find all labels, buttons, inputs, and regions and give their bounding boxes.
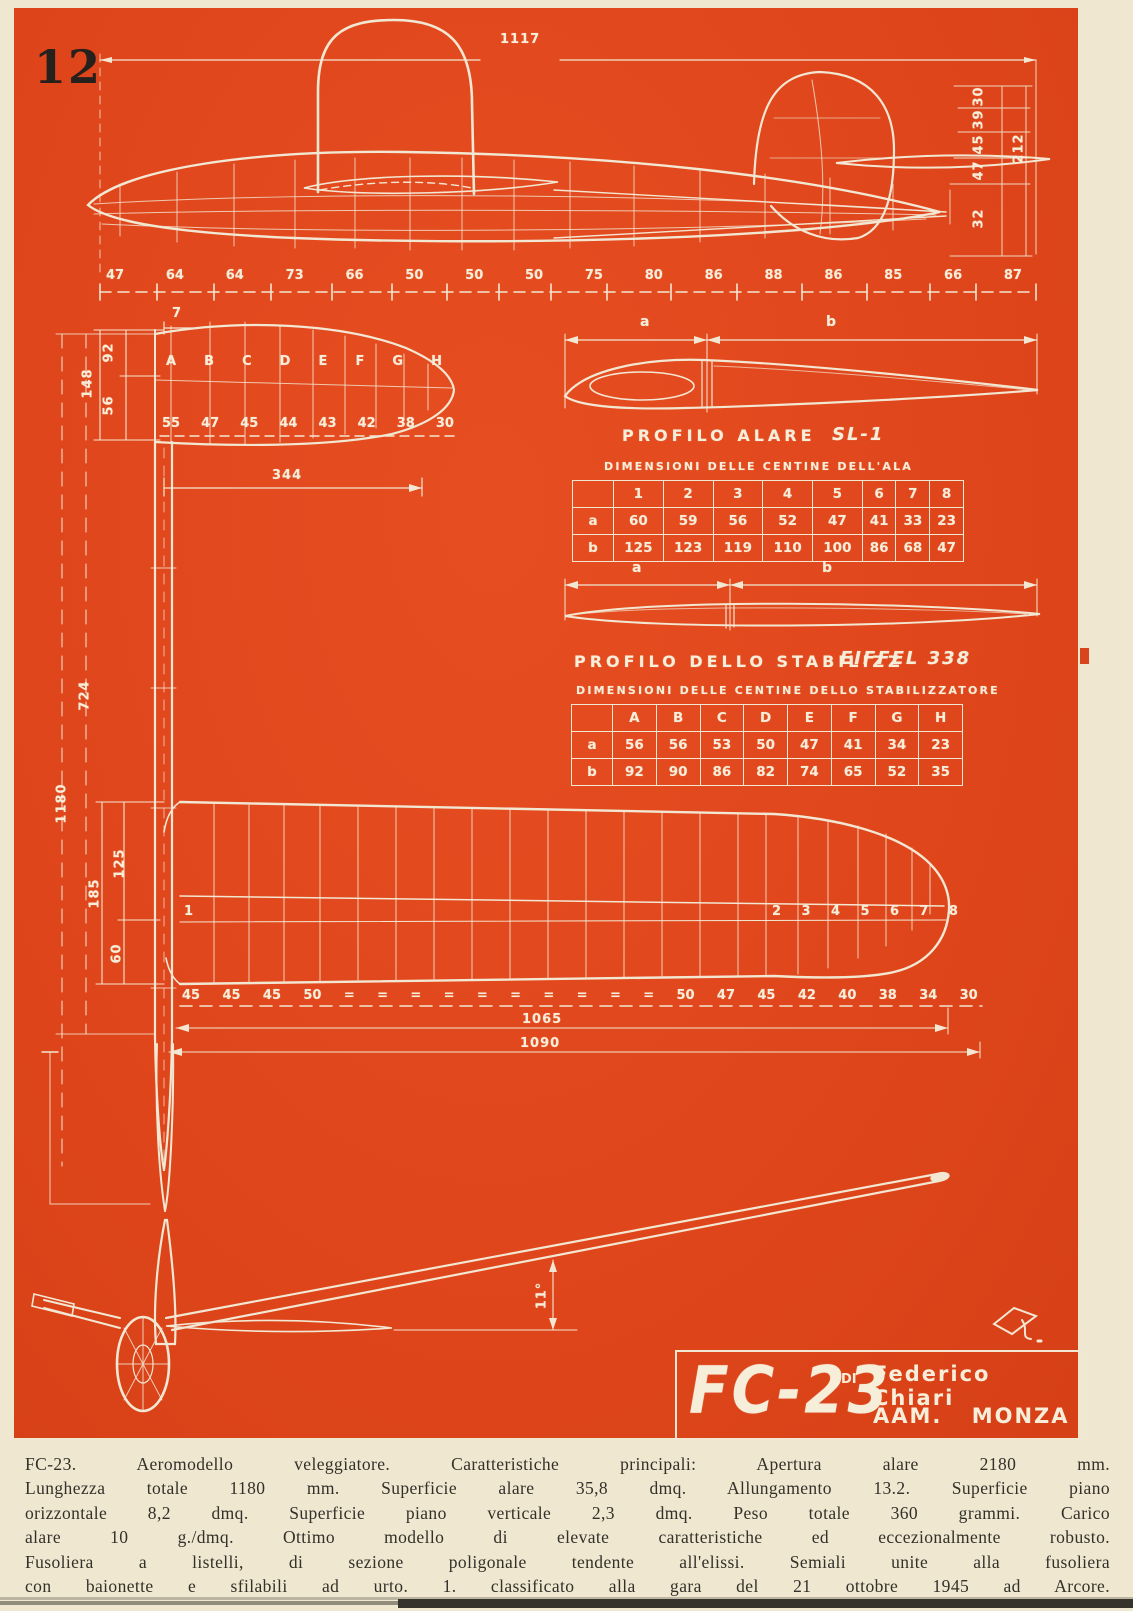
value-cell: 74 xyxy=(788,759,832,786)
value-cell: 119 xyxy=(713,535,763,562)
wing-dim-125: 125 xyxy=(113,848,128,878)
value-cell: 82 xyxy=(744,759,788,786)
fuselage-total-dim: 1180 xyxy=(55,783,70,823)
value-cell: F xyxy=(831,705,875,732)
value-cell: 53 xyxy=(700,732,744,759)
dim-value: 3 xyxy=(801,904,810,919)
page-number: 12 xyxy=(34,40,102,94)
dim-value: 80 xyxy=(645,268,663,283)
stab-span-dim: 344 xyxy=(272,468,302,483)
caption-block: FC-23. Aeromodello veleggiatore. Caratte… xyxy=(25,1452,1110,1598)
value-cell: G xyxy=(875,705,919,732)
wing-profile-title: PROFILO ALARE xyxy=(622,426,816,445)
dim-value: F xyxy=(355,354,364,369)
dihedral-angle-label: 11° xyxy=(534,1282,549,1310)
magazine-page: { "page": { "number": "12", "plate_color… xyxy=(0,0,1133,1611)
dim-value: = xyxy=(643,988,654,1003)
caption-line: orizzontale 8,2 dmq. Superficie piano ve… xyxy=(25,1501,1110,1525)
dim-value: = xyxy=(377,988,388,1003)
value-cell: 52 xyxy=(875,759,919,786)
wing-rib-number-root: 1 xyxy=(184,904,194,919)
dim-value: = xyxy=(510,988,521,1003)
table-row: ABCDEFGH xyxy=(572,705,963,732)
value-cell: 125 xyxy=(614,535,664,562)
wing-dim-185: 185 xyxy=(88,878,103,908)
dim-value: 40 xyxy=(838,988,856,1003)
value-cell: 41 xyxy=(862,508,896,535)
dim-value: = xyxy=(410,988,421,1003)
table-row: 12345678 xyxy=(573,481,964,508)
row-label-cell: a xyxy=(573,508,614,535)
stab-dim-56: 56 xyxy=(102,395,117,415)
caption-line: Lunghezza totale 1180 mm. Superficie ala… xyxy=(25,1476,1110,1500)
value-cell: 47 xyxy=(813,508,863,535)
dim-value: 47 xyxy=(106,268,124,283)
dim-value: 38 xyxy=(397,416,415,431)
dim-value: 75 xyxy=(585,268,603,283)
dim-value: 30 xyxy=(436,416,454,431)
row-label-cell: b xyxy=(572,759,613,786)
designer-signature-icon xyxy=(994,1308,1041,1341)
dim-value: 66 xyxy=(345,268,363,283)
blueprint-plate: 12 1117 47646473665050507580868886856687… xyxy=(14,8,1078,1438)
wing-profile-b-label: b xyxy=(826,314,837,330)
value-cell: 110 xyxy=(763,535,813,562)
dim-value: 2 xyxy=(772,904,781,919)
value-cell: 8 xyxy=(930,481,964,508)
value-cell: 41 xyxy=(831,732,875,759)
tail-dim-2: 39 xyxy=(972,109,987,129)
value-cell: 47 xyxy=(930,535,964,562)
value-cell: D xyxy=(744,705,788,732)
fuselage-plan-linework xyxy=(56,334,176,1170)
dim-value: = xyxy=(577,988,588,1003)
dim-value: 64 xyxy=(166,268,184,283)
dim-value: 50 xyxy=(676,988,694,1003)
dim-value: 50 xyxy=(303,988,321,1003)
dim-value: B xyxy=(204,354,214,369)
caption-line: con baionette e sfilabili ad urto. 1. cl… xyxy=(25,1574,1110,1598)
value-cell: 47 xyxy=(788,732,832,759)
dim-value: 42 xyxy=(358,416,376,431)
wing-rib-numbers: 2345678 xyxy=(772,904,958,919)
value-cell: 23 xyxy=(930,508,964,535)
value-cell: 65 xyxy=(831,759,875,786)
dim-value: D xyxy=(280,354,291,369)
value-cell: 35 xyxy=(919,759,963,786)
tail-dim-3: 45 xyxy=(972,134,987,154)
value-cell: 34 xyxy=(875,732,919,759)
value-cell: A xyxy=(613,705,657,732)
value-cell: 50 xyxy=(744,732,788,759)
wing-span-dim-1: 1065 xyxy=(522,1012,562,1027)
value-cell: 100 xyxy=(813,535,863,562)
value-cell: 56 xyxy=(656,732,700,759)
value-cell: 123 xyxy=(663,535,713,562)
sideview-station-dims: 47646473665050507580868886856687 xyxy=(106,268,1022,283)
value-cell: 33 xyxy=(896,508,930,535)
dim-value: = xyxy=(344,988,355,1003)
dim-value: 45 xyxy=(263,988,281,1003)
dim-value: 86 xyxy=(705,268,723,283)
dim-value: = xyxy=(477,988,488,1003)
dim-value: 43 xyxy=(319,416,337,431)
dim-value: 44 xyxy=(279,416,297,431)
value-cell: 59 xyxy=(663,508,713,535)
value-cell: 5 xyxy=(813,481,863,508)
stab-spacing-dims: 5547454443423830 xyxy=(162,416,454,431)
caption-line: Fusoliera a listelli, di sezione poligon… xyxy=(25,1550,1110,1574)
dim-value: = xyxy=(543,988,554,1003)
dim-value: 42 xyxy=(798,988,816,1003)
stab-dim-92: 92 xyxy=(102,342,117,362)
dim-value: H xyxy=(431,354,442,369)
dim-value: 45 xyxy=(222,988,240,1003)
stab-profile-a-label: a xyxy=(632,560,642,576)
side-view-linework xyxy=(88,20,1050,300)
wing-table-caption: DIMENSIONI DELLE CENTINE DELL'ALA xyxy=(604,460,913,473)
value-cell: 60 xyxy=(614,508,664,535)
designer-name: Federico Chiari xyxy=(873,1362,1079,1410)
dim-value: 87 xyxy=(1004,268,1022,283)
stab-profile-b-label: b xyxy=(822,560,833,576)
dim-value: C xyxy=(242,354,252,369)
rib-dimension-table: 12345678a6059565247413323b12512311911010… xyxy=(572,480,964,562)
page-edge-mid xyxy=(0,1601,400,1605)
stab-dim-148: 148 xyxy=(81,368,96,398)
row-label-cell: a xyxy=(572,732,613,759)
value-cell: B xyxy=(656,705,700,732)
row-label-cell xyxy=(573,481,614,508)
value-cell: 7 xyxy=(896,481,930,508)
dim-value: 7 xyxy=(919,904,928,919)
value-cell: 2 xyxy=(663,481,713,508)
value-cell: 56 xyxy=(713,508,763,535)
row-label-cell: b xyxy=(573,535,614,562)
value-cell: 1 xyxy=(614,481,664,508)
value-cell: 92 xyxy=(613,759,657,786)
dim-value: 50 xyxy=(525,268,543,283)
value-cell: 86 xyxy=(862,535,896,562)
margin-print-mark xyxy=(1080,648,1089,664)
sideview-length-dim: 1117 xyxy=(500,32,540,47)
rib-dimension-table: ABCDEFGHa5656535047413423b92908682746552… xyxy=(571,704,963,786)
club-name: AAM. MONZA xyxy=(873,1404,1070,1428)
wing-plan-linework xyxy=(42,802,982,1204)
fuselage-mid-dim: 724 xyxy=(78,680,93,710)
stab-airfoil-name: EIFFEL 338 xyxy=(840,648,971,669)
dim-value: 50 xyxy=(405,268,423,283)
dim-value: 4 xyxy=(831,904,840,919)
value-cell: 4 xyxy=(763,481,813,508)
tail-dim-4: 47 xyxy=(972,160,987,180)
dim-value: 45 xyxy=(757,988,775,1003)
wing-profile-linework xyxy=(565,334,1038,412)
title-block: FC-23 DI Federico Chiari AAM. MONZA xyxy=(675,1350,1081,1440)
dim-value: 47 xyxy=(201,416,219,431)
dim-value: 88 xyxy=(764,268,782,283)
dim-value: E xyxy=(319,354,328,369)
tail-total-dim: 212 xyxy=(1012,133,1027,163)
wing-dim-60: 60 xyxy=(110,943,125,963)
value-cell: 90 xyxy=(656,759,700,786)
stab-profile-linework xyxy=(565,579,1040,630)
value-cell: H xyxy=(919,705,963,732)
dim-value: = xyxy=(444,988,455,1003)
caption-line: alare 10 g./dmq. Ottimo modello di eleva… xyxy=(25,1525,1110,1549)
table-row: a6059565247413323 xyxy=(573,508,964,535)
dim-value: 50 xyxy=(465,268,483,283)
stab-tip-offset-dim: 7 xyxy=(172,306,182,321)
dim-value: 34 xyxy=(919,988,937,1003)
model-name: FC-23 xyxy=(689,1352,891,1428)
dim-value: 86 xyxy=(824,268,842,283)
dim-value: 5 xyxy=(860,904,869,919)
value-cell: 23 xyxy=(919,732,963,759)
value-cell: 86 xyxy=(700,759,744,786)
di-label: DI xyxy=(841,1372,857,1387)
wing-airfoil-name: SL-1 xyxy=(832,424,884,445)
stab-rib-letters: ABCDEFGH xyxy=(166,354,442,369)
table-row: b9290868274655235 xyxy=(572,759,963,786)
tail-dim-1: 30 xyxy=(972,86,987,106)
dim-value: 30 xyxy=(960,988,978,1003)
value-cell: 56 xyxy=(613,732,657,759)
tail-dim-5: 32 xyxy=(972,208,987,228)
value-cell: 52 xyxy=(763,508,813,535)
value-cell: 68 xyxy=(896,535,930,562)
dim-value: 6 xyxy=(890,904,899,919)
dim-value: 45 xyxy=(240,416,258,431)
dim-value: 66 xyxy=(944,268,962,283)
dim-value: 45 xyxy=(182,988,200,1003)
dim-value: 47 xyxy=(717,988,735,1003)
wing-span-dim-2: 1090 xyxy=(520,1036,560,1051)
value-cell: 3 xyxy=(713,481,763,508)
dim-value: 85 xyxy=(884,268,902,283)
row-label-cell xyxy=(572,705,613,732)
value-cell: 6 xyxy=(862,481,896,508)
value-cell: E xyxy=(788,705,832,732)
caption-line: FC-23. Aeromodello veleggiatore. Caratte… xyxy=(25,1452,1110,1476)
dim-value: A xyxy=(166,354,176,369)
page-edge-dark xyxy=(398,1599,1133,1608)
dim-value: = xyxy=(610,988,621,1003)
table-row: a5656535047413423 xyxy=(572,732,963,759)
dim-value: G xyxy=(392,354,403,369)
table-row: b125123119110100866847 xyxy=(573,535,964,562)
dim-value: 8 xyxy=(949,904,958,919)
wing-spacing-dims: 45454550==========5047454240383430 xyxy=(182,988,978,1003)
value-cell: C xyxy=(700,705,744,732)
dim-value: 73 xyxy=(286,268,304,283)
dim-value: 38 xyxy=(879,988,897,1003)
dim-value: 55 xyxy=(162,416,180,431)
wing-profile-a-label: a xyxy=(640,314,650,330)
dim-value: 64 xyxy=(226,268,244,283)
stab-table-caption: DIMENSIONI DELLE CENTINE DELLO STABILIZZ… xyxy=(576,684,1000,697)
